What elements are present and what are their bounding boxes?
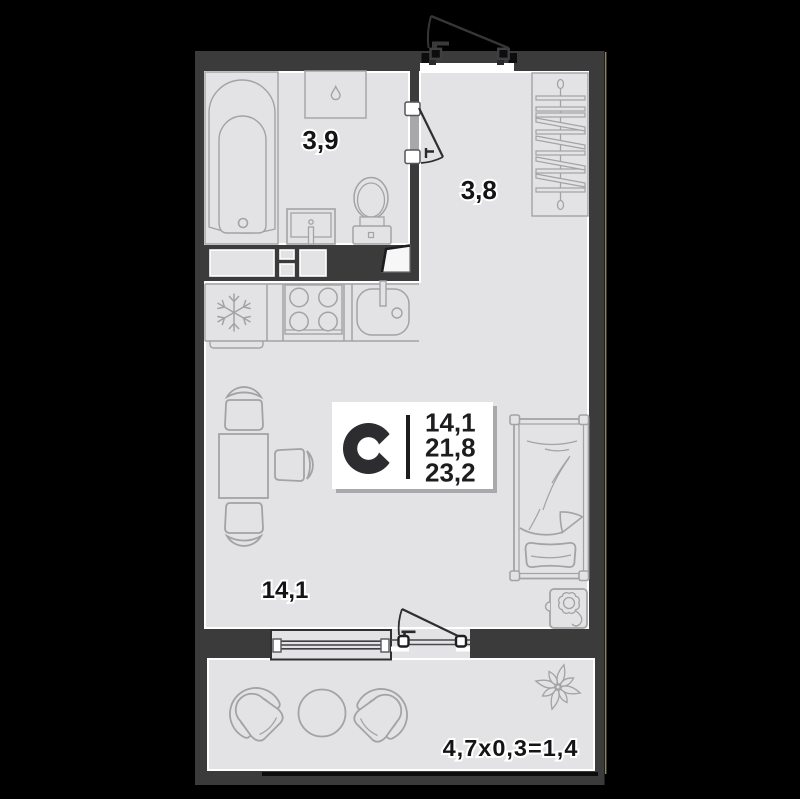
svg-text:3,9: 3,9 [302, 125, 338, 155]
svg-text:4,7x0,3=1,4: 4,7x0,3=1,4 [443, 735, 579, 761]
svg-text:23,2: 23,2 [425, 458, 476, 488]
svg-text:14,1: 14,1 [262, 577, 309, 604]
svg-text:3,8: 3,8 [461, 175, 497, 205]
